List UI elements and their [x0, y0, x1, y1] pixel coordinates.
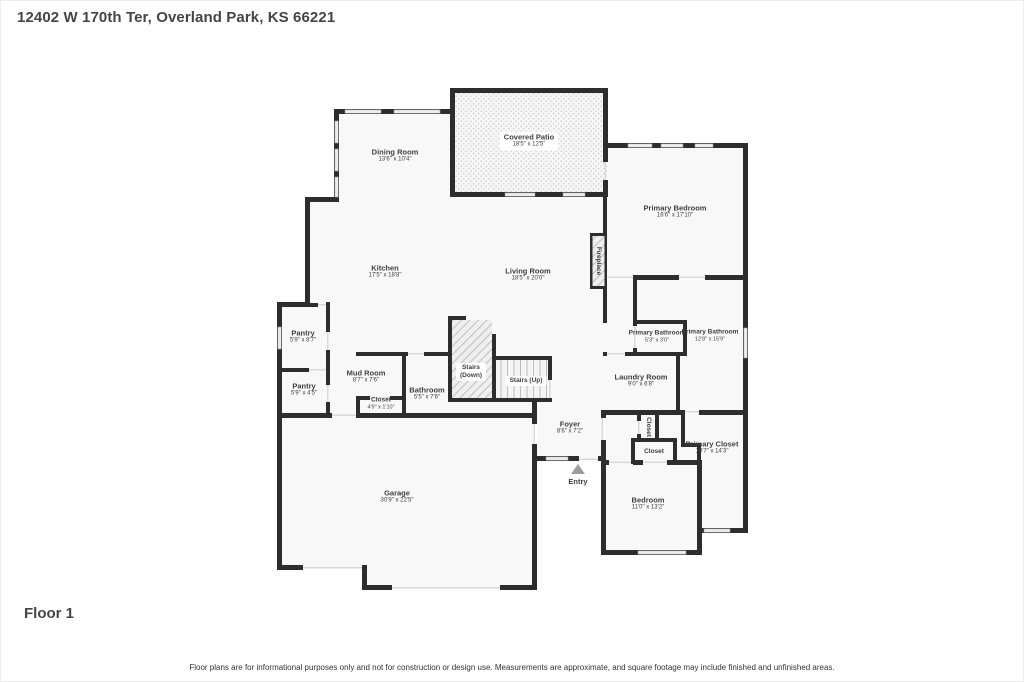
room-label-closet-bedroom: Closet [644, 448, 664, 456]
room-label-closet-hall: Closet [644, 417, 652, 437]
room-label-bathroom: Bathroom 5'5" x 7'6" [409, 386, 444, 403]
room-label-bedroom: Bedroom 11'0" x 13'2" [632, 496, 665, 513]
room-label-primary-bathroom-wc: Primary Bathroom 5'3" x 3'0" [629, 330, 686, 345]
room-label-living-room: Living Room 18'5" x 20'0" [505, 267, 550, 284]
disclaimer-text: Floor plans are for informational purpos… [0, 663, 1024, 672]
entry-arrow-icon [571, 464, 585, 474]
room-label-dining-room: Dining Room 13'6" x 10'4" [372, 148, 419, 165]
room-label-fireplace: Fireplace [594, 247, 602, 276]
room-label-pantry-lower: Pantry 5'9" x 4'5" [291, 382, 317, 399]
room-label-garage: Garage 30'9" x 22'5" [381, 489, 414, 506]
floor-label: Floor 1 [24, 605, 74, 622]
room-label-stairs-up: Stairs (Up) [506, 376, 547, 386]
room-label-mud-room: Mud Room 8'7" x 7'6" [347, 369, 386, 386]
room-label-foyer: Foyer 8'6" x 7'2" [557, 420, 583, 437]
room-label-primary-bedroom: Primary Bedroom 16'6" x 17'10" [644, 204, 707, 221]
room-label-stairs-down: Stairs (Down) [456, 363, 486, 381]
entry-label: Entry [568, 477, 587, 486]
room-label-laundry-room: Laundry Room 9'0" x 6'8" [615, 373, 668, 390]
floor-plan-page: 12402 W 170th Ter, Overland Park, KS 662… [0, 0, 1024, 682]
room-label-covered-patio: Covered Patio 18'5" x 12'5" [500, 132, 558, 151]
floor-plan-drawing [0, 0, 1024, 682]
room-label-primary-bathroom: Primary Bathroom 12'8" x 15'9" [682, 329, 739, 344]
room-label-primary-closet: Primary Closet 10'7" x 14'3" [686, 440, 739, 457]
room-label-mud-closet: Closet 4'9" x 1'10" [367, 397, 394, 412]
room-label-pantry-upper: Pantry 5'9" x 8'7" [290, 329, 316, 346]
stairs-down-hatch [452, 320, 492, 398]
room-label-kitchen: Kitchen 17'5" x 18'8" [369, 264, 402, 281]
